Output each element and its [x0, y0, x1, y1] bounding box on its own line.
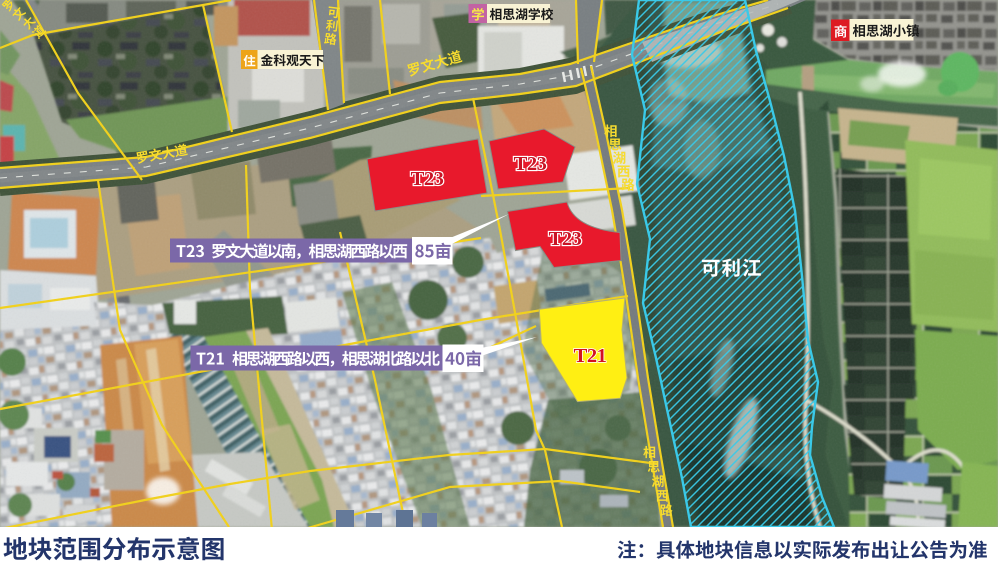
svg-text:T23: T23 [514, 153, 547, 175]
svg-text:T23: T23 [411, 168, 444, 190]
svg-text:T21: T21 [574, 345, 607, 367]
svg-text:T23: T23 [549, 228, 582, 250]
